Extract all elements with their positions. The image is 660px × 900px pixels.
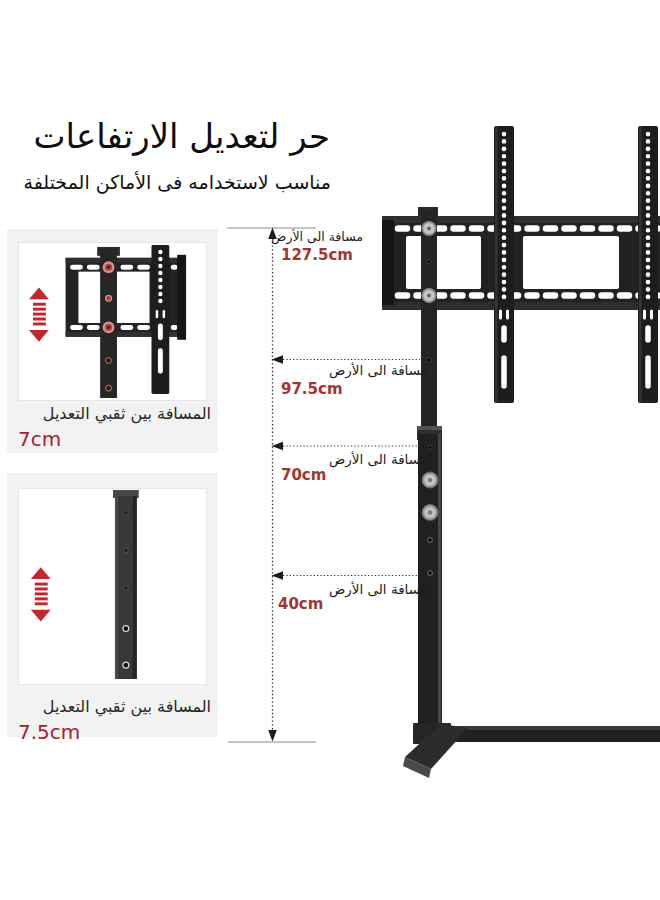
inset-box-pole-hole-spacing: المسافة بين ثقبي التعديل 7.5cm [7,473,218,737]
measurement-label: مسافة الى الأرض [329,452,428,467]
measurement-value: 40cm [278,595,323,613]
measurement-label: مسافة الى الأرض [329,582,428,597]
inset-box-bracket-hole-spacing: المسافة بين ثقبي التعديل 7cm [7,229,218,453]
adjust-knob [422,505,438,521]
screw [422,221,437,236]
inset-caption: المسافة بين ثقبي التعديل [13,404,211,423]
inset-photo-pole [18,488,207,685]
adjust-knob [422,472,438,488]
product-infographic: حر لتعديل الارتفاعات مناسب لاستخدامه فى … [0,0,660,900]
inset-caption: المسافة بين ثقبي التعديل [13,697,211,716]
bracket-closeup-illustration [19,243,206,400]
dimension-lines [227,228,420,743]
measurement-value: 70cm [281,466,326,484]
measurement-label: مسافة الى الأرض [329,363,428,378]
vesa-rail-left [494,126,514,403]
floor-base [403,723,660,778]
up-down-arrow-icon [29,287,49,341]
measurement-value: 97.5cm [281,380,343,398]
inset-photo-bracket [18,242,207,401]
mount-plate [382,207,660,431]
page-title: حر لتعديل الارتفاعات [34,116,330,156]
inset-value: 7cm [18,427,61,451]
measurement-value: 127.5cm [281,246,353,264]
screw [422,288,437,303]
mini-bracket [66,245,186,398]
page-subtitle: مناسب لاستخدامه فى الأماكن المختلفة [24,171,331,193]
telescoping-pole [417,426,442,730]
inset-value: 7.5cm [18,720,80,744]
pole-closeup-illustration [19,489,206,684]
mini-pole [113,490,139,679]
vesa-rail-right [638,126,658,403]
measurement-label: مسافة الى الأرض [271,230,363,244]
up-down-arrow-icon [31,567,51,621]
